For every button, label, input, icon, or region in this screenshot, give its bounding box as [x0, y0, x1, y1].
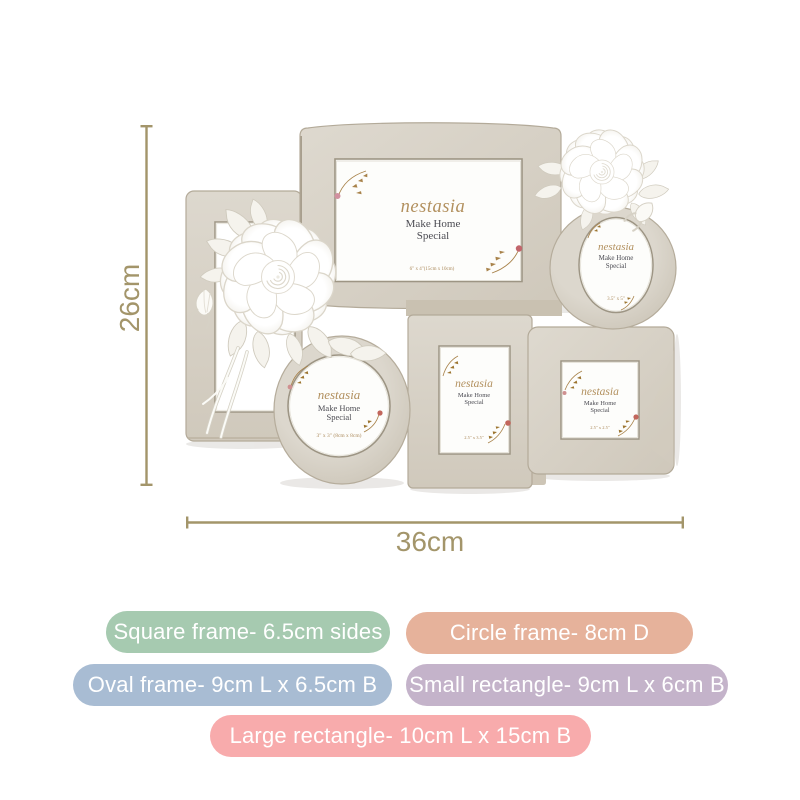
- svg-text:36cm: 36cm: [396, 526, 464, 557]
- svg-text:Make Home: Make Home: [599, 254, 634, 262]
- svg-text:Special: Special: [326, 412, 352, 422]
- svg-text:Make Home: Make Home: [406, 218, 461, 230]
- svg-text:3" x 3" (8cm x 8cm): 3" x 3" (8cm x 8cm): [317, 432, 362, 439]
- svg-text:Make Home: Make Home: [584, 400, 616, 407]
- svg-text:26cm: 26cm: [114, 264, 145, 332]
- svg-text:Make Home: Make Home: [458, 392, 490, 399]
- svg-text:2.5" x 2.5": 2.5" x 2.5": [590, 425, 610, 430]
- svg-text:6" x 4"(15cm x 10cm): 6" x 4"(15cm x 10cm): [410, 267, 455, 272]
- svg-text:Special: Special: [464, 399, 483, 406]
- svg-text:nestasia: nestasia: [581, 386, 619, 398]
- svg-text:nestasia: nestasia: [401, 197, 466, 217]
- svg-text:Special: Special: [590, 407, 609, 414]
- svg-text:nestasia: nestasia: [318, 387, 361, 402]
- svg-text:Special: Special: [606, 262, 627, 270]
- svg-text:nestasia: nestasia: [455, 378, 493, 390]
- svg-text:2.5" x 3.5": 2.5" x 3.5": [464, 435, 484, 440]
- svg-text:nestasia: nestasia: [598, 241, 635, 253]
- svg-text:3.5" x 5": 3.5" x 5": [607, 297, 625, 302]
- svg-text:Special: Special: [417, 230, 449, 242]
